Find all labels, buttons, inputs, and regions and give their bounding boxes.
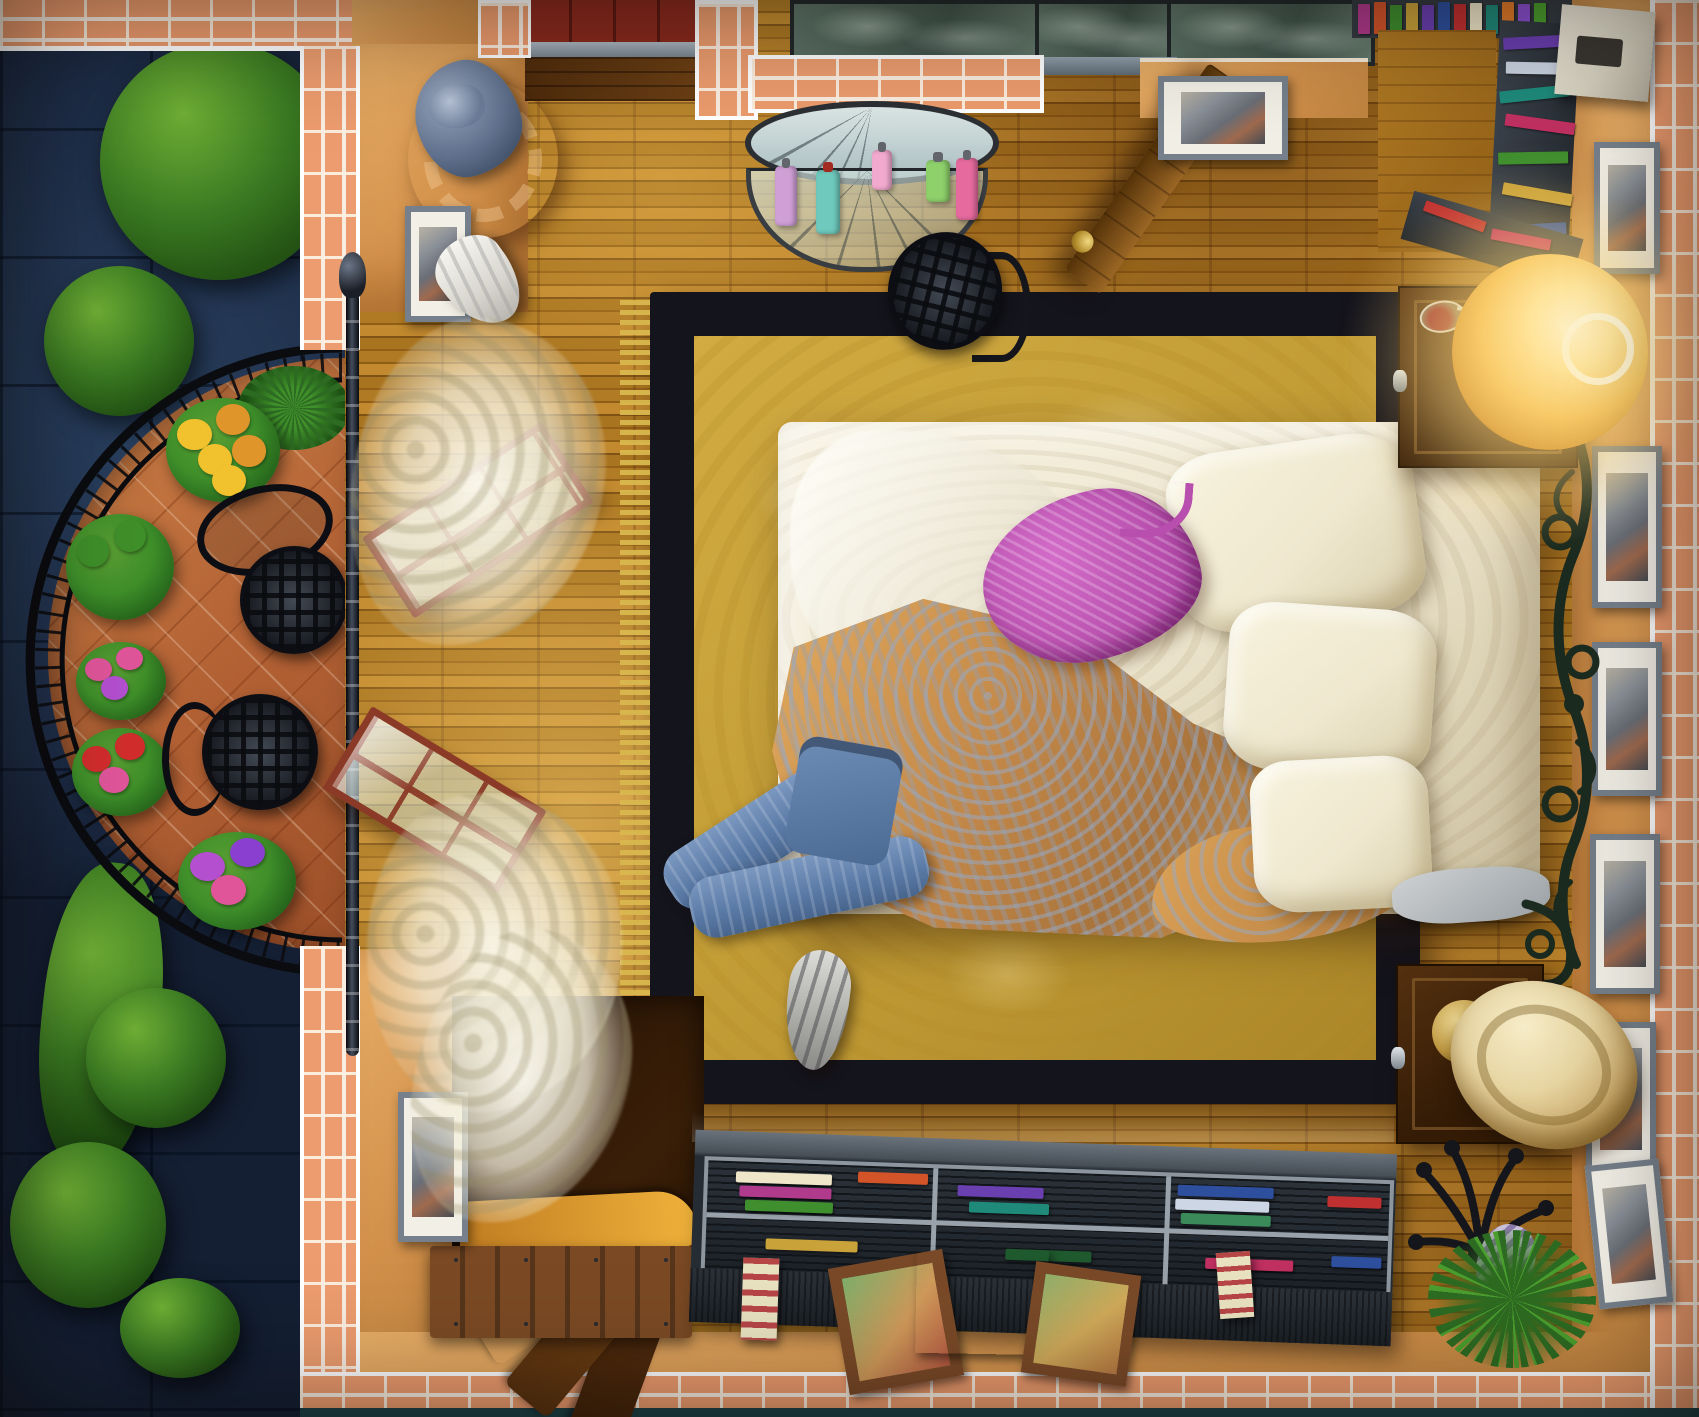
marble-panel: [1167, 0, 1375, 66]
bush: [86, 988, 226, 1128]
balcony-iron-chair[interactable]: [240, 546, 348, 654]
wooden-hatch[interactable]: [430, 1246, 692, 1338]
marble-panel: [1035, 0, 1175, 65]
book: [858, 1172, 928, 1185]
purple-flower-pot[interactable]: [178, 832, 296, 930]
book: [1181, 1213, 1271, 1227]
picture-frame[interactable]: [1585, 1159, 1674, 1310]
book: [765, 1238, 857, 1252]
flower-dot: [99, 767, 128, 793]
perfume-bottle[interactable]: [926, 160, 950, 202]
red-flower-pot[interactable]: [72, 728, 170, 816]
flower-dot: [230, 838, 265, 867]
perfume-bottle[interactable]: [775, 166, 797, 226]
picture-frame[interactable]: [1158, 76, 1288, 160]
perfume-bottle[interactable]: [816, 170, 840, 234]
perfume-bottle[interactable]: [872, 150, 892, 190]
book-spine: [1498, 151, 1568, 164]
frame-art: [1604, 861, 1646, 968]
rod-finial: [339, 252, 366, 298]
book-spine: [1504, 113, 1575, 135]
book: [1175, 1199, 1269, 1213]
balcony-iron-chair[interactable]: [202, 694, 318, 810]
pillow[interactable]: [1220, 599, 1439, 781]
frame-art: [1602, 1184, 1656, 1283]
curtain-rod: [346, 292, 359, 1056]
book: [736, 1171, 832, 1185]
dark-wood-strip: [525, 57, 697, 101]
flower-dot: [115, 733, 144, 759]
picture-frame[interactable]: [1594, 142, 1660, 274]
flower-dot: [216, 404, 250, 435]
book: [739, 1185, 831, 1199]
jeans-waist[interactable]: [783, 734, 906, 868]
brick-band-top: [0, 0, 352, 51]
book: [969, 1201, 1049, 1215]
bush: [120, 1278, 240, 1378]
flower-dot: [211, 875, 246, 904]
book-spine: [1502, 182, 1573, 206]
keepsake-box[interactable]: [1216, 1251, 1255, 1319]
leaf-dot: [114, 520, 146, 552]
leaf-dot: [77, 535, 109, 567]
book: [1327, 1196, 1381, 1209]
perfume-bottle[interactable]: [956, 158, 978, 220]
terracotta-pot: [146, 566, 182, 600]
frame-art: [1608, 165, 1647, 251]
potted-palm[interactable]: [1428, 1230, 1596, 1368]
shelf-divider: [707, 1212, 1389, 1241]
baseboard-strip: [300, 1408, 1699, 1417]
rug-fringe: [620, 300, 650, 1096]
storage-box[interactable]: [1554, 4, 1655, 102]
bedside-lamp-lit[interactable]: [1452, 254, 1648, 450]
book: [957, 1185, 1043, 1199]
scene-bedroom-topdown: [0, 0, 1699, 1417]
iron-headboard: [1534, 412, 1606, 972]
red-tile-strip: [525, 0, 697, 42]
keepsake-photo-frame[interactable]: [1021, 1261, 1142, 1387]
frame-art: [1606, 668, 1648, 770]
wall-top-left: [352, 0, 480, 46]
frame-art: [1181, 92, 1266, 144]
frame-art: [1606, 473, 1648, 581]
book: [1178, 1185, 1274, 1199]
flower-dot: [116, 647, 143, 670]
keepsake-box[interactable]: [741, 1257, 780, 1340]
brick-pier: [478, 0, 531, 58]
bush: [10, 1142, 166, 1308]
book: [1331, 1256, 1381, 1269]
book: [745, 1200, 833, 1214]
flower-dot: [232, 435, 266, 466]
stone-sill: [525, 42, 697, 57]
book-spine: [1490, 228, 1551, 250]
book-spine: [1358, 4, 1370, 34]
flower-dot: [101, 676, 128, 699]
